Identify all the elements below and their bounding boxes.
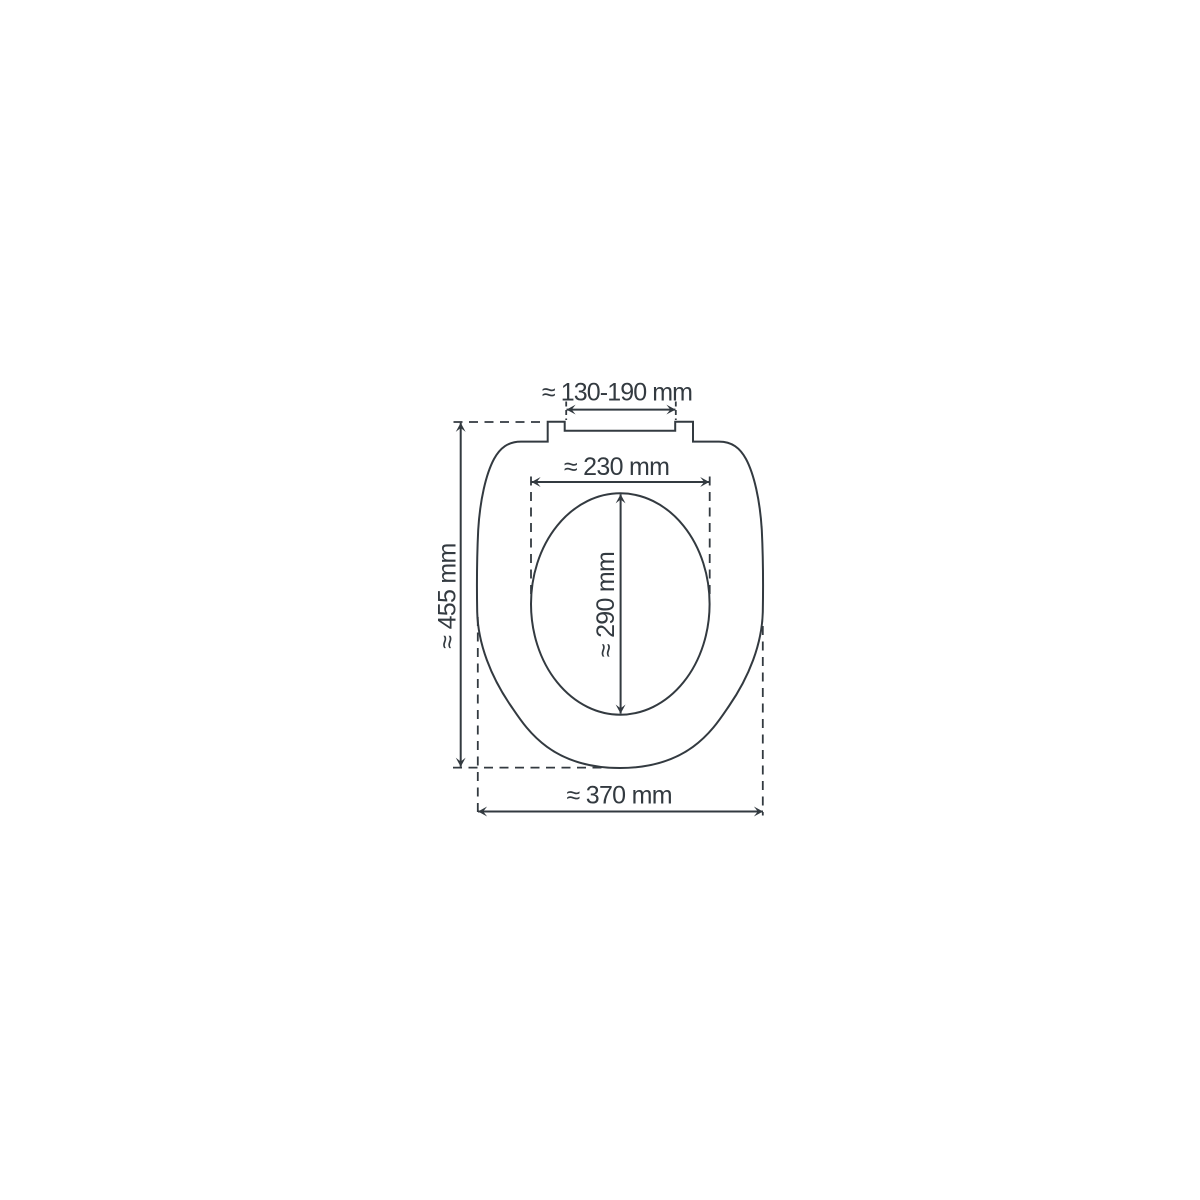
svg-text:≈ 230 mm: ≈ 230 mm [564,453,669,481]
svg-text:≈ 370 mm: ≈ 370 mm [567,782,672,810]
svg-text:≈ 455 mm: ≈ 455 mm [434,543,462,648]
svg-text:≈ 130-190 mm: ≈ 130-190 mm [542,379,692,407]
svg-text:≈ 290 mm: ≈ 290 mm [592,552,620,657]
